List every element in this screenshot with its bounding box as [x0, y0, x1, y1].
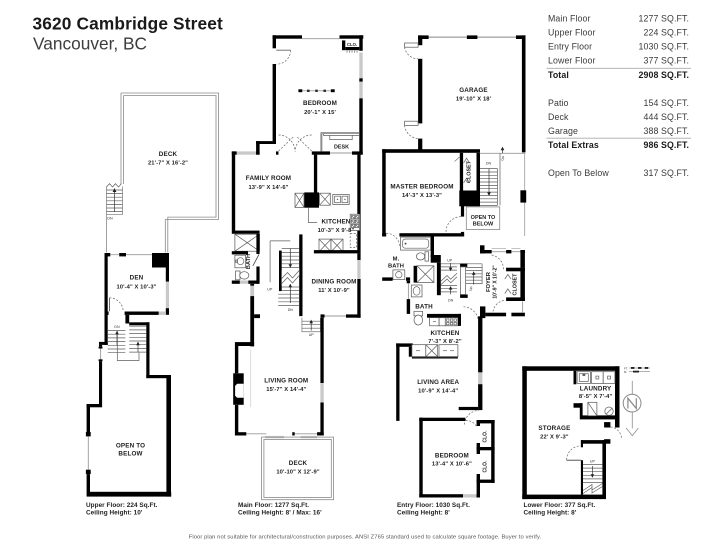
svg-text:UP: UP — [267, 288, 273, 292]
svg-text:BEDROOM: BEDROOM — [303, 100, 337, 107]
svg-text:LIVING AREA: LIVING AREA — [417, 379, 459, 386]
svg-text:DN: DN — [107, 217, 113, 221]
svg-text:DECK: DECK — [289, 460, 308, 467]
svg-text:Floor plan not suitable for ar: Floor plan not suitable for architectura… — [189, 535, 542, 541]
svg-text:Open To Below: Open To Below — [548, 168, 609, 178]
svg-text:10'-9" X 10'-2": 10'-9" X 10'-2" — [493, 265, 499, 299]
svg-text:BEDROOM: BEDROOM — [435, 452, 469, 459]
svg-text:21'-7" X 16'-2": 21'-7" X 16'-2" — [148, 161, 188, 167]
svg-text:Ceiling Height: 8': Ceiling Height: 8' — [397, 510, 450, 517]
svg-text:DESK: DESK — [334, 145, 349, 151]
svg-text:Entry Floor: Entry Floor — [548, 41, 592, 51]
svg-text:DN: DN — [486, 162, 492, 166]
svg-text:UP: UP — [590, 460, 596, 464]
svg-text:Garage: Garage — [548, 126, 578, 136]
svg-text:BATH: BATH — [415, 304, 433, 311]
svg-text:GARAGE: GARAGE — [459, 87, 488, 94]
svg-text:10'-3" X 9'-8": 10'-3" X 9'-8" — [318, 228, 355, 234]
svg-text:11' X 10'-9": 11' X 10'-9" — [318, 288, 350, 294]
svg-text:UP: UP — [309, 333, 315, 337]
svg-text:14'-3" X 13'-3": 14'-3" X 13'-3" — [402, 193, 442, 199]
svg-text:BELOW: BELOW — [118, 451, 142, 458]
svg-text:Lower Floor: Lower Floor — [548, 55, 596, 65]
svg-text:BATH: BATH — [388, 264, 404, 270]
svg-text:388 SQ.FT.: 388 SQ.FT. — [644, 126, 690, 136]
svg-text:2908 SQ.FT.: 2908 SQ.FT. — [639, 70, 689, 80]
svg-text:22' X 9'-3": 22' X 9'-3" — [540, 434, 569, 440]
svg-text:STORAGE: STORAGE — [538, 425, 570, 432]
svg-text:FOYER: FOYER — [486, 271, 492, 292]
svg-text:M.: M. — [624, 370, 627, 374]
svg-text:Main Floor: Main Floor — [548, 13, 591, 23]
svg-text:Ceiling Height: 8': Ceiling Height: 8' — [524, 510, 577, 517]
svg-text:LIVING ROOM: LIVING ROOM — [264, 377, 308, 384]
svg-text:DN: DN — [114, 325, 120, 329]
svg-text:Total Extras: Total Extras — [548, 140, 599, 150]
svg-text:CLO.: CLO. — [483, 430, 489, 443]
svg-text:8'-5" X 7'-4": 8'-5" X 7'-4" — [579, 394, 613, 400]
svg-text:7'-3" X 8'-2": 7'-3" X 8'-2" — [428, 339, 462, 345]
svg-text:DN: DN — [288, 308, 294, 312]
svg-text:DEN: DEN — [130, 275, 144, 282]
svg-text:CLOSET: CLOSET — [467, 160, 473, 183]
svg-text:UP: UP — [447, 259, 453, 263]
svg-text:Ceiling Height: 8' / Max: 16': Ceiling Height: 8' / Max: 16' — [238, 510, 322, 517]
svg-text:OPEN TO: OPEN TO — [471, 215, 496, 221]
svg-text:377 SQ.FT.: 377 SQ.FT. — [644, 55, 690, 65]
svg-text:317 SQ.FT.: 317 SQ.FT. — [644, 168, 690, 178]
svg-text:10'-4" X 10'-3": 10'-4" X 10'-3" — [116, 285, 156, 291]
svg-text:Ceiling Height: 10': Ceiling Height: 10' — [86, 510, 143, 517]
svg-text:Upper Floor: Upper Floor — [548, 27, 596, 37]
svg-text:444 SQ.FT.: 444 SQ.FT. — [644, 112, 690, 122]
svg-text:CLO.: CLO. — [347, 42, 357, 47]
svg-text:DINING ROOM: DINING ROOM — [311, 278, 356, 285]
svg-text:10'-9" X 14'-4": 10'-9" X 14'-4" — [418, 389, 458, 395]
svg-text:Deck: Deck — [548, 112, 569, 122]
svg-text:224 SQ.FT.: 224 SQ.FT. — [644, 27, 690, 37]
svg-text:BATH: BATH — [246, 254, 252, 269]
svg-text:FAMILY ROOM: FAMILY ROOM — [246, 175, 291, 182]
svg-text:Vancouver, BC: Vancouver, BC — [33, 33, 147, 53]
svg-text:Total: Total — [548, 70, 569, 80]
svg-text:1030 SQ.FT.: 1030 SQ.FT. — [639, 41, 689, 51]
svg-text:Upper Floor: 224 Sq.Ft.: Upper Floor: 224 Sq.Ft. — [86, 502, 158, 509]
svg-text:KITCHEN: KITCHEN — [321, 219, 350, 226]
svg-text:DECK: DECK — [159, 151, 178, 158]
svg-text:LAUNDRY: LAUNDRY — [580, 385, 612, 392]
svg-text:20'-1" X 15': 20'-1" X 15' — [304, 110, 336, 116]
svg-text:KITCHEN: KITCHEN — [430, 330, 459, 337]
svg-text:Entry Floor: 1030 Sq.Ft.: Entry Floor: 1030 Sq.Ft. — [397, 502, 470, 509]
svg-text:BELOW: BELOW — [473, 222, 494, 228]
svg-text:1277 SQ.FT.: 1277 SQ.FT. — [639, 13, 689, 23]
svg-text:M.: M. — [393, 257, 400, 263]
svg-text:MASTER BEDROOM: MASTER BEDROOM — [390, 184, 453, 191]
svg-text:CLO.: CLO. — [483, 460, 489, 473]
svg-text:13'-4" X 10'-6": 13'-4" X 10'-6" — [432, 462, 472, 468]
svg-text:15'-7" X 14'-4": 15'-7" X 14'-4" — [266, 387, 306, 393]
svg-text:Lower Floor: 377 Sq.Ft.: Lower Floor: 377 Sq.Ft. — [524, 502, 596, 509]
svg-text:154 SQ.FT.: 154 SQ.FT. — [644, 98, 690, 108]
svg-text:986 SQ.FT.: 986 SQ.FT. — [644, 140, 690, 150]
svg-text:3620 Cambridge Street: 3620 Cambridge Street — [33, 14, 224, 34]
svg-text:19'-10" X 18': 19'-10" X 18' — [456, 97, 492, 103]
svg-text:DN: DN — [448, 299, 454, 303]
svg-text:13'-9" X 14'-6": 13'-9" X 14'-6" — [248, 185, 288, 191]
svg-text:10'-10" X 12'-9": 10'-10" X 12'-9" — [276, 470, 320, 476]
svg-text:Patio: Patio — [548, 98, 569, 108]
svg-text:CLOSET: CLOSET — [513, 273, 519, 296]
svg-text:Main Floor: 1277 Sq.Ft.: Main Floor: 1277 Sq.Ft. — [238, 502, 309, 509]
svg-text:OPEN TO: OPEN TO — [116, 442, 145, 449]
